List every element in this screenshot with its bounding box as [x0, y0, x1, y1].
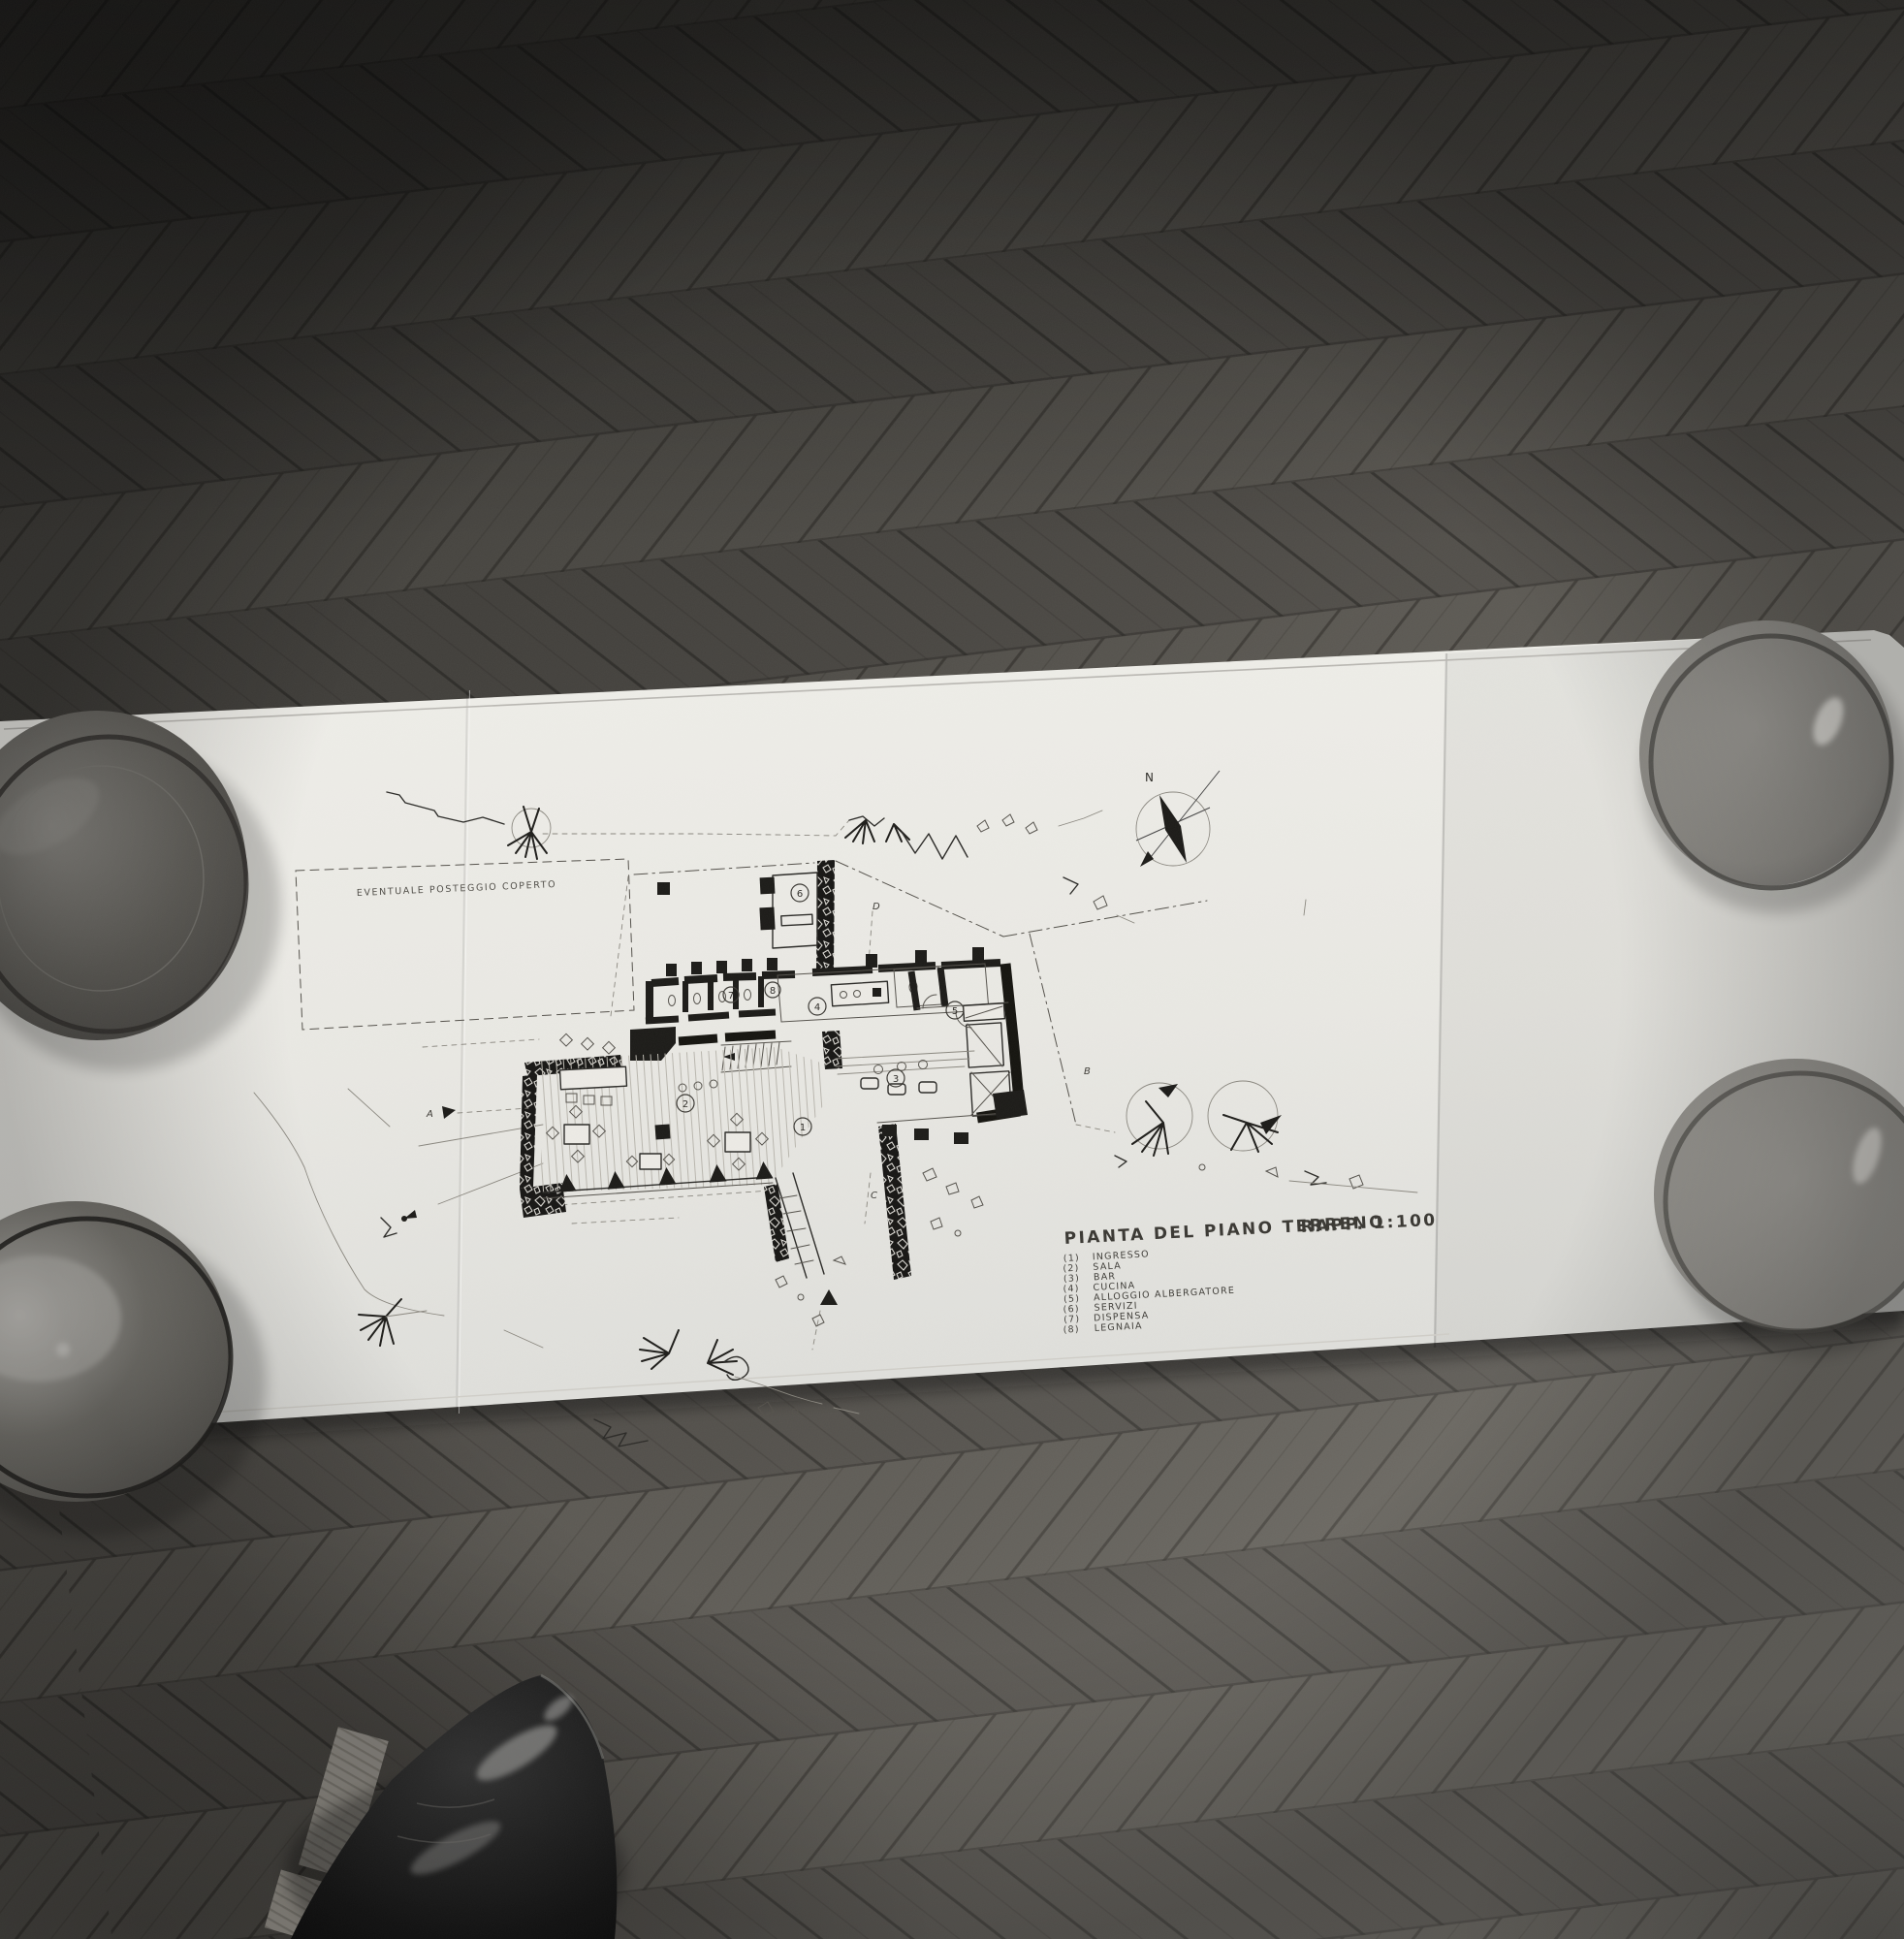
photograph: EVENTUALE POSTEGGIO COPERTO: [0, 0, 1904, 1939]
vignette: [0, 0, 1904, 1939]
